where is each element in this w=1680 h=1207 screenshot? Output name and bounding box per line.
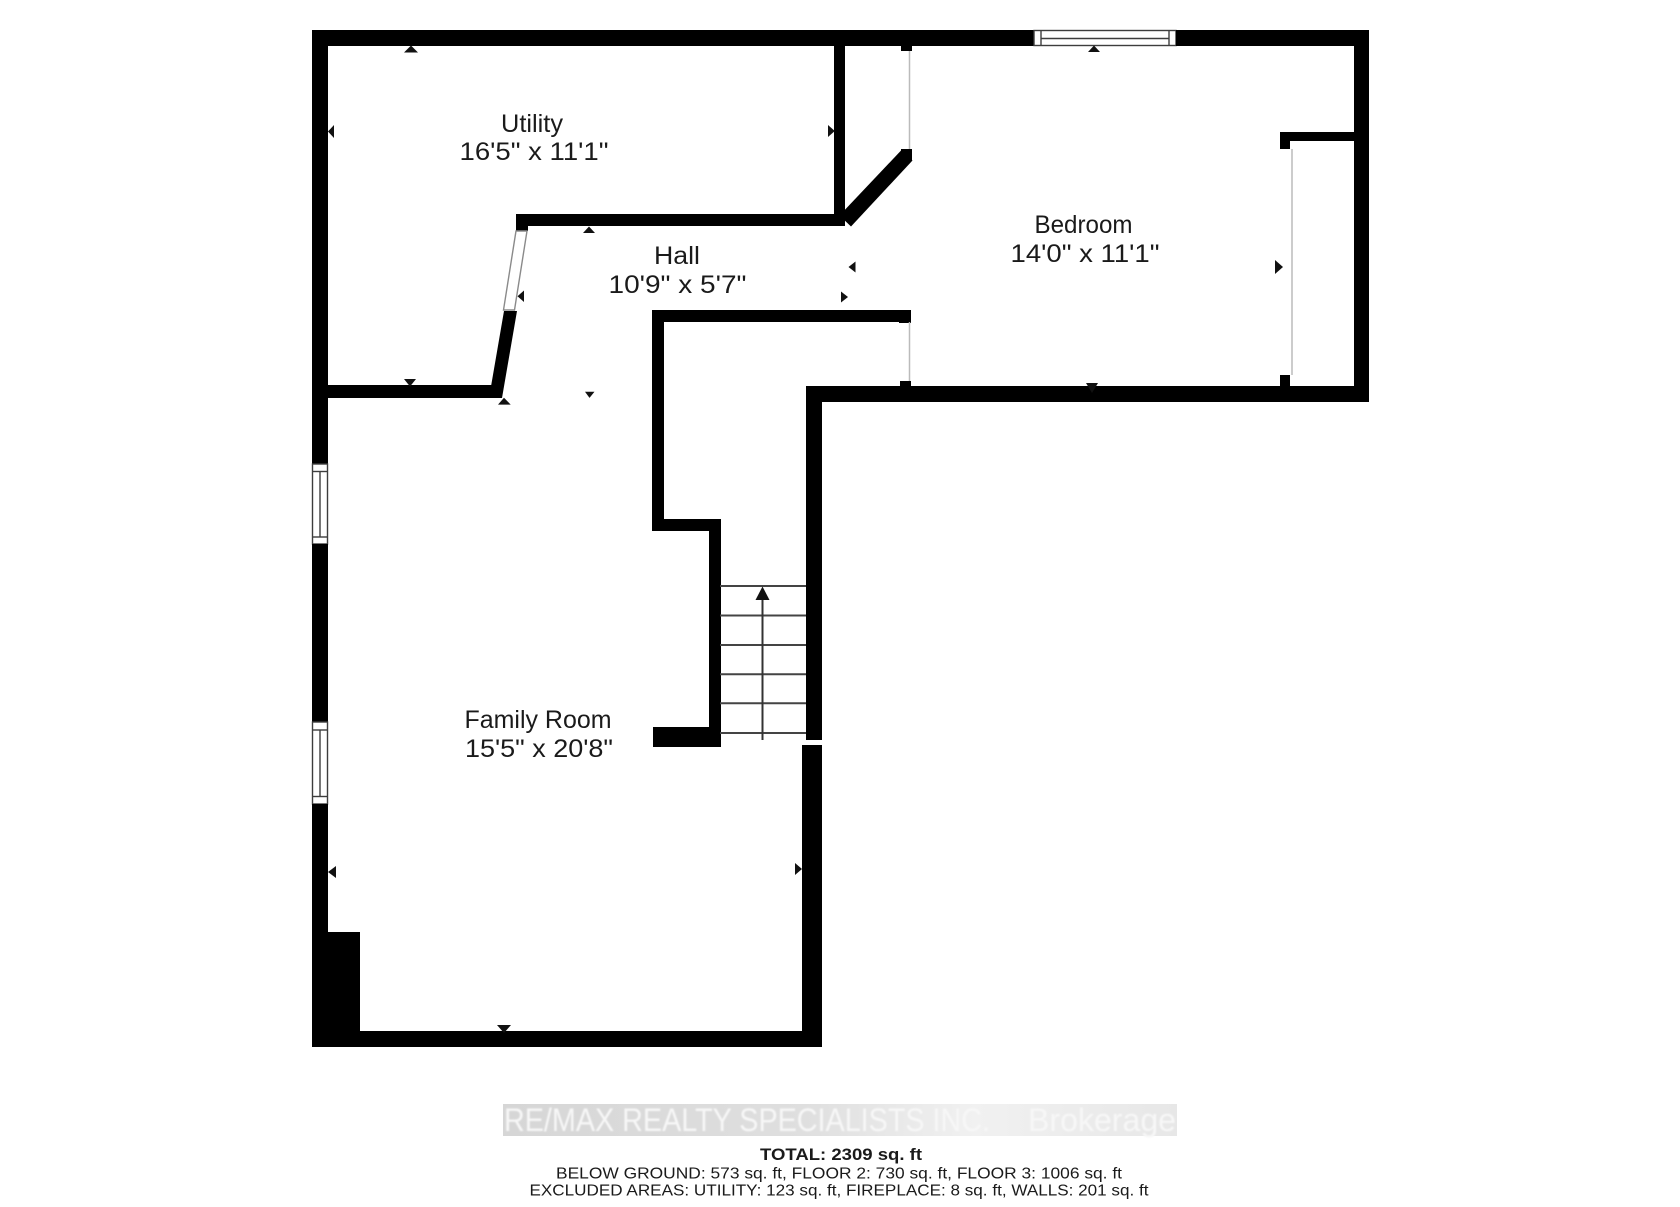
svg-text:Family Room: Family Room: [465, 706, 612, 734]
svg-text:14'0" x 11'1": 14'0" x 11'1": [1011, 240, 1160, 268]
svg-text:BELOW GROUND: 573 sq. ft, FLOO: BELOW GROUND: 573 sq. ft, FLOOR 2: 730 s…: [556, 1166, 1123, 1183]
svg-text:Hall: Hall: [654, 242, 700, 270]
svg-text:Brokerage: Brokerage: [1028, 1102, 1176, 1138]
svg-text:EXCLUDED AREAS: UTILITY: 123 s: EXCLUDED AREAS: UTILITY: 123 sq. ft, FIR…: [530, 1183, 1150, 1200]
svg-text:15'5" x 20'8": 15'5" x 20'8": [465, 735, 613, 763]
svg-text:RE/MAX REALTY SPECIALISTS INC.: RE/MAX REALTY SPECIALISTS INC.: [504, 1102, 990, 1138]
svg-text:Utility: Utility: [501, 110, 564, 138]
svg-text:TOTAL: 2309 sq. ft: TOTAL: 2309 sq. ft: [760, 1145, 922, 1164]
svg-text:16'5" x 11'1": 16'5" x 11'1": [460, 138, 609, 166]
svg-text:10'9" x 5'7": 10'9" x 5'7": [609, 271, 747, 299]
svg-text:Bedroom: Bedroom: [1035, 211, 1133, 239]
